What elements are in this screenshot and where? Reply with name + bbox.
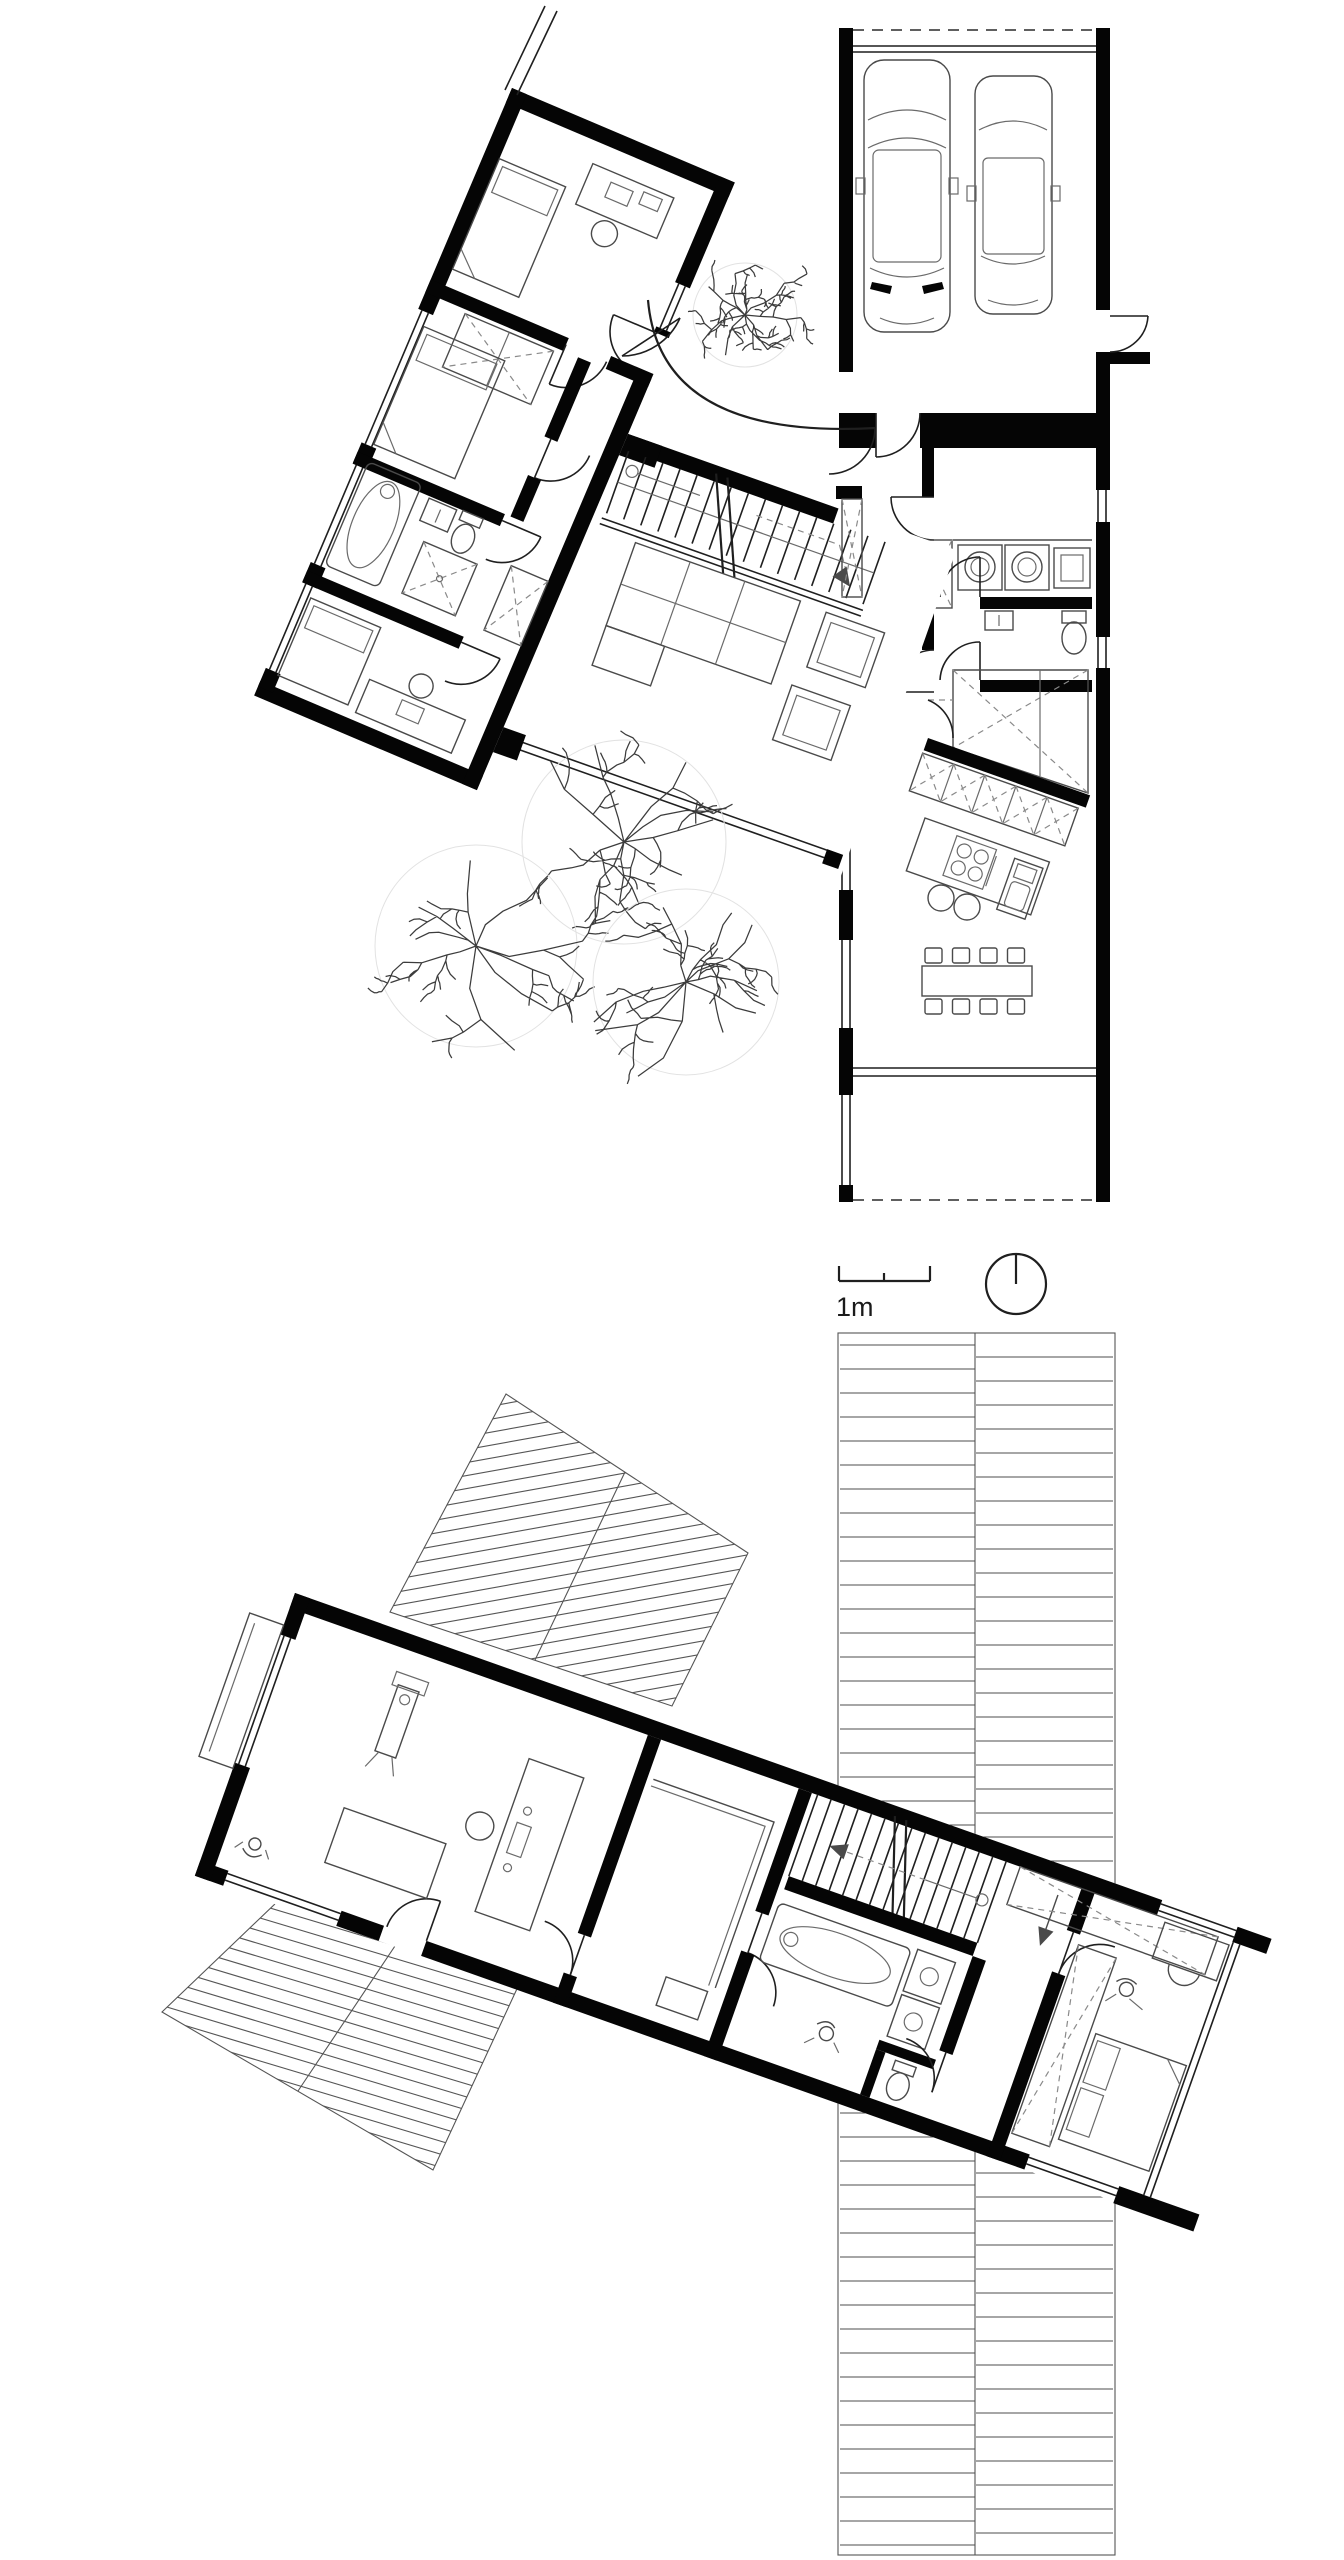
window-icon — [1098, 490, 1106, 522]
toilet-icon — [1062, 611, 1086, 654]
garage — [839, 28, 1150, 457]
wc — [940, 611, 1092, 692]
tree-icon — [368, 845, 628, 1058]
walkway — [505, 6, 557, 95]
dryer-icon — [1005, 545, 1049, 590]
sink-icon — [985, 611, 1013, 630]
door-arc-icon — [940, 642, 980, 680]
kitchen-cabinets — [909, 738, 1090, 848]
sink-icon — [1054, 548, 1090, 588]
entry-door-arc-icon — [1110, 316, 1148, 352]
north-arrow-icon — [986, 1254, 1046, 1314]
upper-floor-bar — [156, 1580, 1294, 2232]
tree-icon — [593, 889, 779, 1084]
cooktop-icon — [943, 836, 998, 890]
scale-bar: 1m — [836, 1266, 930, 1322]
chair-row-bottom — [925, 999, 1025, 1014]
laundry-room — [940, 540, 1092, 609]
floor-plan-drawing: 1m — [0, 0, 1344, 2560]
door-arc-icon — [928, 700, 953, 738]
ground-floor-plan — [254, 6, 1150, 1202]
stool-icon — [928, 885, 954, 911]
chair-row-top — [925, 948, 1025, 963]
tree-icon — [688, 260, 814, 367]
sink-icon — [997, 858, 1043, 919]
window-icon — [1098, 637, 1106, 668]
upper-floor-plan — [150, 1253, 1294, 2555]
stool-icon — [954, 894, 980, 920]
scale-label: 1m — [836, 1292, 874, 1322]
dining-table-icon — [922, 948, 1032, 1014]
